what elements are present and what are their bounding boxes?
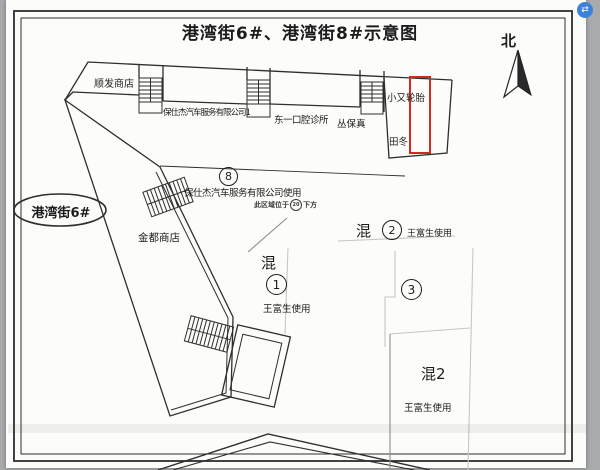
browser-extension-icon[interactable]: ⇄ [577, 2, 593, 18]
zone8-note-circled-number: 20 [290, 199, 302, 211]
compass-label: 北 [501, 30, 516, 51]
staircase-icon [247, 80, 270, 117]
zone8-label: 保仕杰汽车服务有限公司使用 [184, 185, 301, 199]
street-edge-line [160, 166, 405, 176]
street-name-badge: 港湾街6# [15, 202, 107, 221]
zone1-kind: 混 [261, 252, 276, 273]
north-arrow-icon [504, 50, 531, 97]
highlight-rect [410, 77, 430, 153]
site-plan-drawing [0, 0, 600, 470]
zone8-note-suffix: 下方 [303, 200, 317, 210]
shop-label-shunfa: 顺发商店 [94, 75, 134, 90]
zone8-note: 此区域位于 20 下方 [254, 199, 317, 211]
zone2-kind: 混 [356, 220, 371, 241]
page-title: 港湾街6#、港湾街8#示意图 [90, 19, 510, 44]
shop-label-cong: 丛保真 [337, 116, 366, 130]
zone2-circled-number: 2 [382, 220, 402, 240]
shop-label-dental: 东一口腔诊所 [274, 112, 328, 126]
staircase-icon [139, 78, 162, 113]
hun2-user: 王富生使用 [404, 400, 452, 414]
scan-artifact [8, 424, 586, 433]
hun2-label: 混2 [421, 363, 446, 384]
zone2-user: 王富生使用 [407, 226, 452, 239]
zone1-user: 王富生使用 [263, 301, 311, 315]
staircase-icon [361, 82, 383, 114]
shop-label-baoshijie: 保仕杰汽车服务有限公司1 [163, 106, 250, 118]
staircase-icon [184, 316, 233, 353]
label-tiandong: 田冬 [389, 134, 408, 148]
bottom-building-outline [158, 434, 430, 470]
zone3-circled-number: 3 [401, 279, 422, 300]
left-building-outline [65, 100, 233, 416]
zone8-note-prefix: 此区域位于 [254, 200, 289, 210]
zone8-circled-number: 8 [219, 167, 238, 186]
shop-label-jindu: 金都商店 [138, 230, 180, 245]
shop-label-tire: 小又轮胎 [387, 90, 425, 104]
zone1-circled-number: 1 [266, 274, 287, 295]
